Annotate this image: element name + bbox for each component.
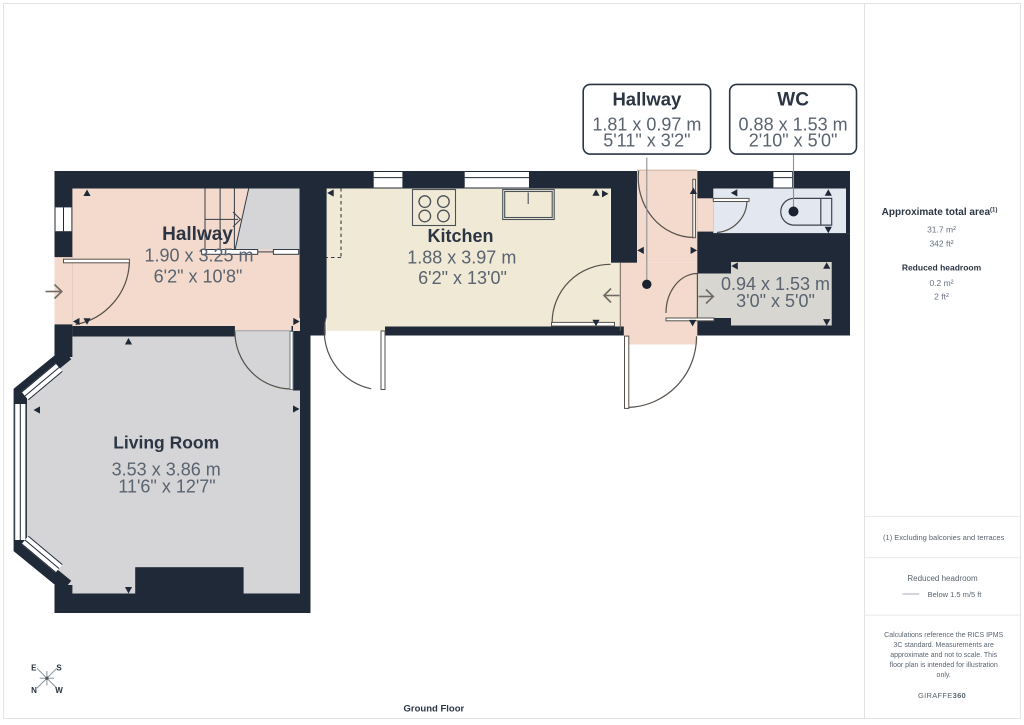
svg-text:Hallway: Hallway	[162, 224, 233, 245]
svg-text:31.7 m²: 31.7 m²	[927, 225, 956, 235]
svg-text:Calculations reference the RIC: Calculations reference the RICS IPMS	[884, 632, 1003, 639]
svg-text:Reduced headroom: Reduced headroom	[907, 574, 978, 583]
svg-text:N: N	[31, 686, 37, 695]
svg-text:2'10" x 5'0": 2'10" x 5'0"	[749, 131, 838, 151]
svg-text:Ground Floor: Ground Floor	[404, 704, 465, 715]
svg-text:6'2" x 10'8": 6'2" x 10'8"	[154, 267, 243, 287]
svg-text:WC: WC	[777, 90, 809, 111]
svg-text:1.90 x 3.25 m: 1.90 x 3.25 m	[144, 246, 253, 266]
svg-text:W: W	[55, 686, 63, 695]
svg-text:Reduced headroom: Reduced headroom	[902, 263, 982, 273]
svg-text:Approximate total area(1): Approximate total area(1)	[882, 207, 998, 218]
svg-text:342 ft²: 342 ft²	[929, 239, 953, 249]
svg-text:approximate and not to scale.: approximate and not to scale. This	[890, 652, 997, 659]
svg-text:Hallway: Hallway	[612, 89, 682, 110]
svg-text:0.2 m²: 0.2 m²	[929, 278, 953, 288]
svg-text:Below 1.5 m/5 ft: Below 1.5 m/5 ft	[928, 590, 983, 599]
svg-text:2 ft²: 2 ft²	[934, 292, 949, 302]
svg-text:Kitchen: Kitchen	[427, 226, 493, 246]
svg-text:E: E	[31, 663, 37, 672]
svg-text:floor plan is intended for ill: floor plan is intended for illustration	[890, 662, 998, 669]
svg-text:6'2" x 13'0": 6'2" x 13'0"	[418, 268, 507, 288]
svg-text:1.88 x 3.97 m: 1.88 x 3.97 m	[407, 248, 516, 268]
svg-text:Living Room: Living Room	[113, 433, 219, 453]
svg-text:5'11" x 3'2": 5'11" x 3'2"	[603, 131, 690, 151]
svg-text:(1) Excluding balconies and te: (1) Excluding balconies and terraces	[883, 533, 1005, 542]
svg-text:3C standard. Measurements are: 3C standard. Measurements are	[894, 642, 994, 649]
svg-text:S: S	[56, 663, 62, 672]
svg-text:only.: only.	[937, 672, 951, 679]
svg-text:GIRAFFE360: GIRAFFE360	[918, 691, 966, 700]
svg-text:3'0" x 5'0": 3'0" x 5'0"	[736, 291, 815, 311]
svg-text:11'6" x 12'7": 11'6" x 12'7"	[118, 477, 215, 497]
